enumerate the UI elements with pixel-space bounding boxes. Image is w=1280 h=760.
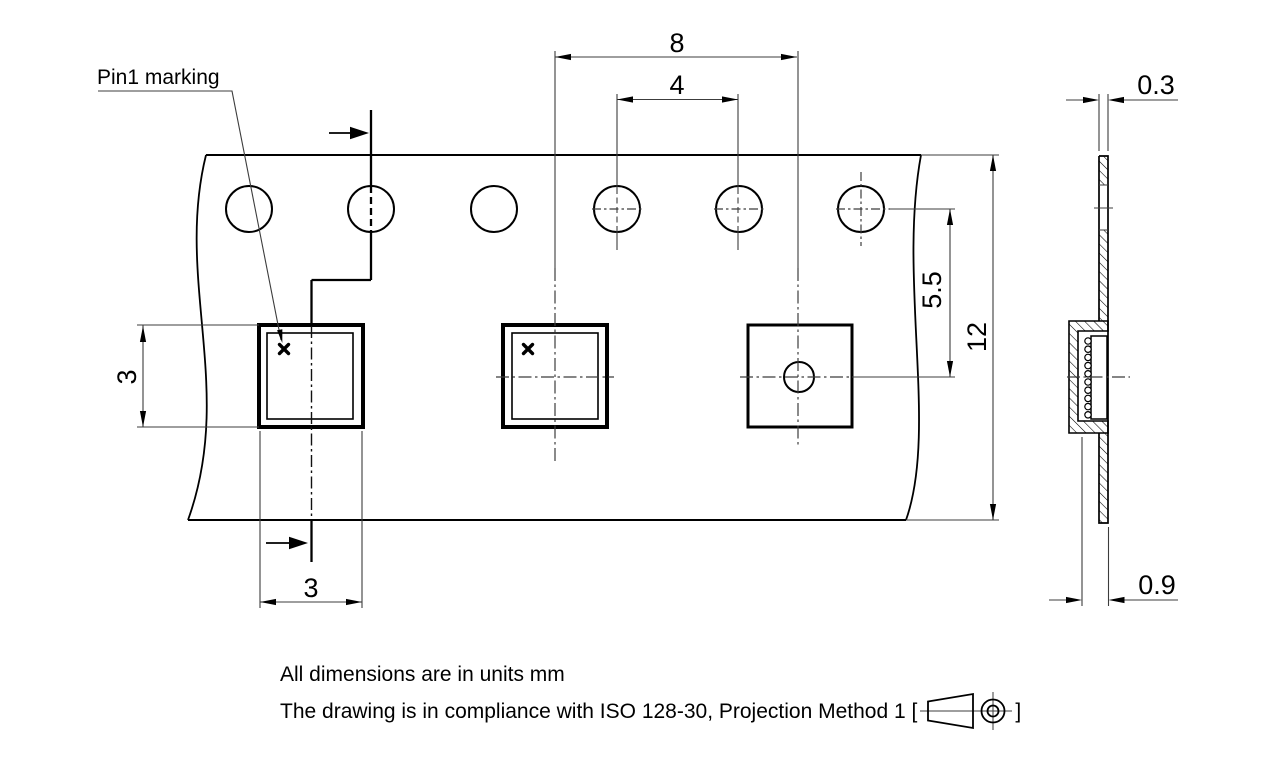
dim-8-label: 8 (669, 28, 684, 58)
dim-arrow-icon (1108, 97, 1124, 103)
dim-arrow-icon (260, 599, 276, 605)
dim-0-3-label: 0.3 (1137, 70, 1175, 100)
dim-arrow-icon (990, 504, 996, 520)
note-compliance-bracket: ] (1015, 697, 1021, 726)
technical-drawing-svg: Pin1 marking 8 4 5.5 (0, 0, 1280, 760)
dimension-tape-thickness: 0.3 (1066, 70, 1178, 151)
note-compliance-text: The drawing is in compliance with ISO 12… (280, 697, 917, 726)
tape-top-view (188, 155, 999, 520)
pin1-callout: Pin1 marking (97, 66, 282, 343)
dim-12-label: 12 (962, 322, 992, 352)
dim-arrow-icon (1083, 97, 1099, 103)
drawing-sheet: Pin1 marking 8 4 5.5 (0, 0, 1280, 760)
component-pocket-3 (740, 325, 955, 427)
section-arrow-bottom (266, 537, 308, 549)
sprocket-hole (471, 186, 517, 232)
drawing-notes: All dimensions are in units mm The drawi… (280, 660, 1021, 733)
note-compliance: The drawing is in compliance with ISO 12… (280, 689, 1021, 733)
dim-5-5-label: 5.5 (917, 271, 947, 309)
section-arrow-icon (289, 537, 308, 549)
pin1-label: Pin1 marking (97, 66, 220, 89)
dim-arrow-icon (781, 54, 797, 60)
dim-arrow-icon (990, 155, 996, 171)
dim-0-9-label: 0.9 (1138, 570, 1176, 600)
dim-3h-label: 3 (303, 573, 318, 603)
solder-balls (1085, 338, 1091, 418)
dimension-pocket-vertical: 3 (112, 325, 259, 427)
dim-arrow-icon (140, 411, 146, 427)
dimension-hole-to-pocket: 5.5 (890, 209, 955, 377)
dim-arrow-icon (140, 326, 146, 342)
sprocket-holes (226, 172, 890, 246)
section-arrow-icon (350, 127, 369, 139)
tape-side-view (1067, 156, 1130, 523)
dim-arrow-icon (1109, 597, 1125, 603)
note-units: All dimensions are in units mm (280, 660, 1021, 689)
section-arrow-top (329, 127, 369, 139)
dim-arrow-icon (617, 96, 633, 102)
dim-3v-label: 3 (112, 369, 142, 384)
projection-method-icon (920, 689, 1012, 733)
dim-arrow-icon (346, 599, 362, 605)
dim-4-label: 4 (669, 70, 684, 100)
tape-left-break-line (188, 155, 207, 520)
dim-arrow-icon (1066, 597, 1082, 603)
dim-arrow-icon (947, 361, 953, 377)
dim-arrow-icon (722, 96, 738, 102)
dimension-pocket-depth: 0.9 (1049, 437, 1178, 606)
dim-arrow-icon (555, 54, 571, 60)
tape-right-break-line (906, 155, 921, 520)
dimension-tape-width: 12 (962, 155, 996, 520)
sprocket-hole (226, 186, 272, 232)
dim-arrow-icon (947, 209, 953, 225)
